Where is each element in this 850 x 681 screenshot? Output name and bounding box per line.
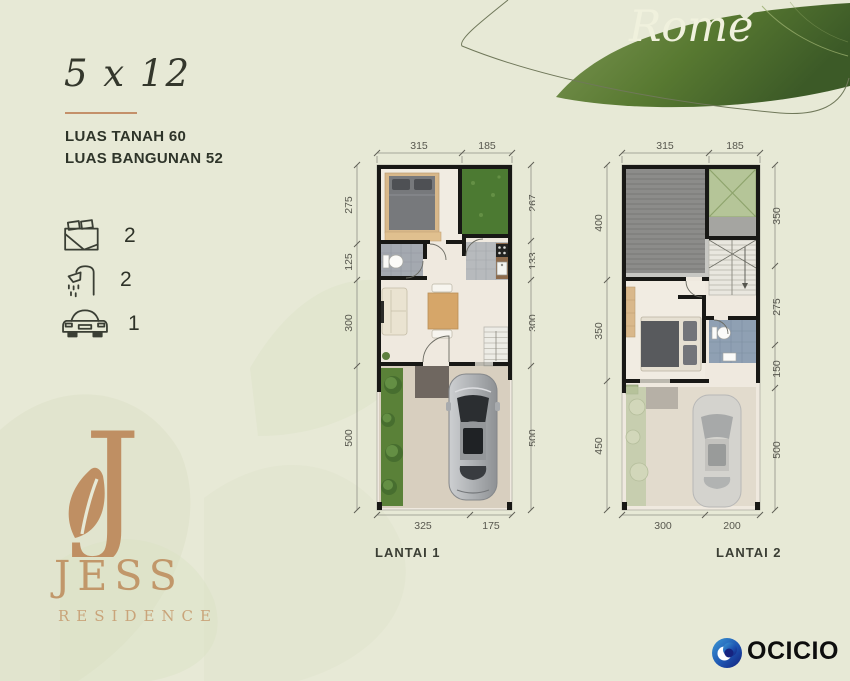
feature-bathrooms: 2 [62, 262, 132, 298]
plan2-label: LANTAI 2 [716, 545, 782, 560]
floorplan-lantai-2: 315 185 400 350 450 350 275 150 500 300 … [585, 135, 795, 547]
dim-label: 500 [771, 441, 783, 459]
floorplan-lantai-1: 315 185 275 125 300 500 267 133 300 500 … [335, 135, 535, 547]
plan1-label: LANTAI 1 [375, 545, 441, 560]
bed [641, 317, 701, 371]
plant [382, 352, 390, 360]
sofa [382, 288, 407, 335]
size-rule-divider [65, 112, 137, 114]
garage-count: 1 [128, 312, 140, 336]
dim-label: 315 [410, 140, 428, 152]
shower-icon [62, 262, 100, 298]
dim-label: 315 [656, 140, 674, 152]
void-garden [709, 169, 756, 217]
spec-building-area: LUAS BANGUNAN 52 [65, 150, 223, 167]
dim-label: 125 [343, 253, 355, 271]
developer-name: OCICIO [747, 637, 839, 666]
dim-label: 133 [527, 252, 535, 270]
stairs [709, 240, 756, 295]
feature-bedrooms: 2 [62, 218, 136, 254]
bed-icon [62, 218, 104, 254]
dim-label: 150 [771, 360, 783, 378]
dim-label: 500 [527, 429, 535, 447]
car-topview [446, 374, 500, 500]
dim-label: 275 [343, 196, 355, 214]
dim-label: 350 [771, 207, 783, 225]
car-icon [62, 306, 108, 342]
dim-label: 400 [593, 214, 605, 232]
dim-label: 325 [414, 520, 432, 532]
poster: Rome 5 x 12 LUAS TANAH 60 LUAS BANGUNAN … [0, 0, 850, 681]
toilet [383, 255, 403, 268]
wardrobe [626, 287, 635, 337]
bathroom [709, 320, 756, 363]
dim-label: 200 [723, 520, 741, 532]
brand-name: JESS [54, 552, 184, 600]
jess-logo-mark: J [50, 412, 170, 557]
dim-label: 350 [593, 322, 605, 340]
dim-label: 450 [593, 437, 605, 455]
dim-label: 275 [771, 298, 783, 316]
outdoor-below [626, 387, 756, 507]
bed [385, 173, 439, 233]
type-name: Rome [629, 2, 754, 52]
brand-subtitle: RESIDENCE [58, 607, 218, 625]
dim-label: 300 [343, 314, 355, 332]
dim-label: 500 [343, 429, 355, 447]
bedroom-count: 2 [124, 224, 136, 248]
feature-garage: 1 [62, 306, 140, 342]
ocicio-logo-icon [710, 636, 744, 670]
bathroom-count: 2 [120, 268, 132, 292]
dim-label: 267 [527, 194, 535, 212]
dim-label: 300 [527, 314, 535, 332]
roof [626, 169, 705, 273]
dim-label: 185 [478, 140, 496, 152]
dim-label: 185 [726, 140, 744, 152]
dim-label: 175 [482, 520, 500, 532]
tv [381, 301, 384, 323]
stairs [484, 327, 508, 366]
dim-label: 300 [654, 520, 672, 532]
size-title: 5 x 12 [64, 52, 191, 95]
spec-land-area: LUAS TANAH 60 [65, 128, 186, 145]
